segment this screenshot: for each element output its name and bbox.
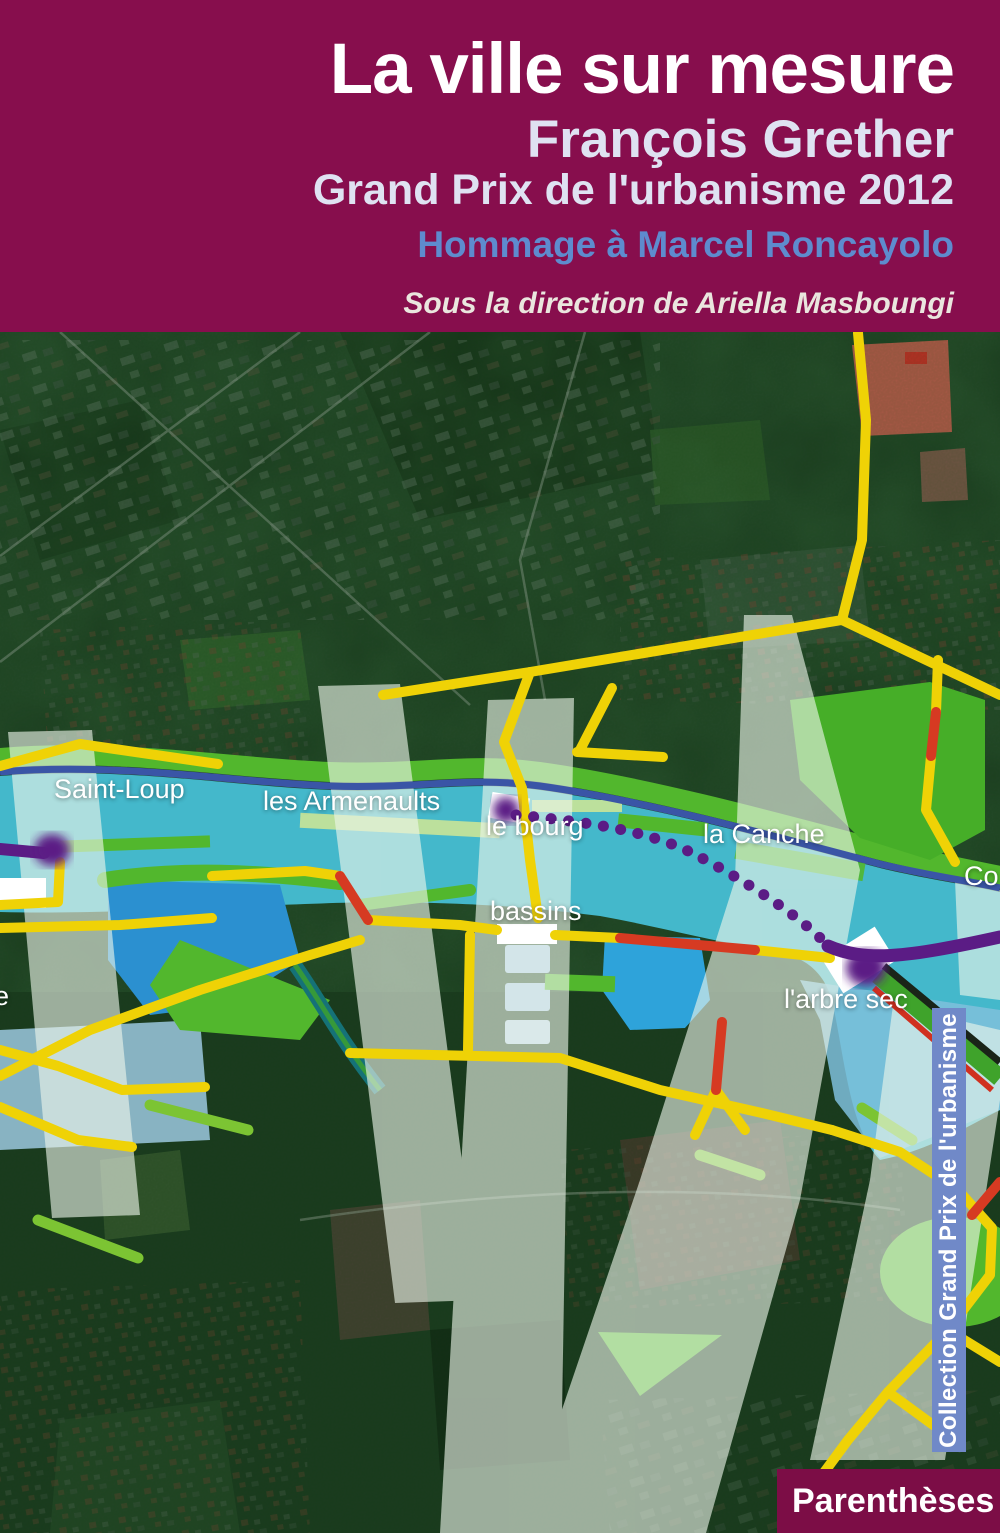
- direction-line: Sous la direction de Ariella Masboungi: [403, 289, 954, 320]
- label-bassins: bassins: [490, 896, 582, 926]
- collection-strip: Collection Grand Prix de l'urbanisme: [932, 1008, 966, 1452]
- publisher-name: Parenthèses: [792, 1482, 994, 1521]
- page-title: La ville sur mesure: [330, 34, 954, 105]
- label-arbre-sec: l'arbre sec: [784, 984, 908, 1014]
- label-le-bourg: le bourg: [486, 811, 584, 841]
- homage-line: Hommage à Marcel Roncayolo: [417, 226, 954, 264]
- label-les-armenaults: les Armenaults: [263, 786, 440, 816]
- aerial-map: Saint-Loup les Armenaults le bourg la Ca…: [0, 332, 1000, 1533]
- collection-strip-label: Collection Grand Prix de l'urbanisme: [935, 1013, 963, 1448]
- label-partial-right: Co: [964, 861, 999, 891]
- book-cover: La ville sur mesure François Grether Gra…: [0, 0, 1000, 1533]
- label-partial-left: e: [0, 981, 9, 1011]
- author-name: François Grether: [527, 113, 954, 167]
- label-saint-loup: Saint-Loup: [54, 774, 185, 804]
- prize-subtitle: Grand Prix de l'urbanisme 2012: [313, 169, 954, 213]
- cover-header: La ville sur mesure François Grether Gra…: [0, 0, 1000, 332]
- publisher-band: Parenthèses: [777, 1469, 1000, 1533]
- label-la-canche: la Canche: [703, 819, 825, 849]
